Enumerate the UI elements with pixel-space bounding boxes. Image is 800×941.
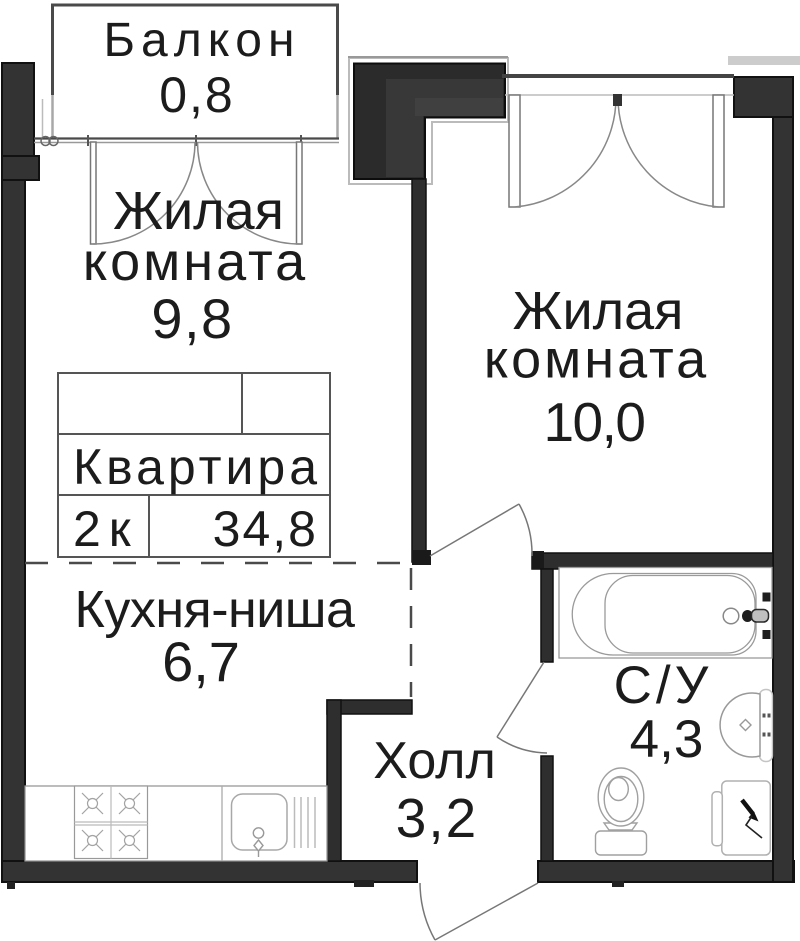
svg-text:Балкон: Балкон [104, 14, 301, 67]
svg-text:Холл: Холл [373, 732, 496, 790]
svg-text:34,8: 34,8 [213, 501, 318, 557]
svg-text:6,7: 6,7 [162, 630, 240, 693]
svg-text:комната: комната [83, 232, 308, 292]
svg-text:4,3: 4,3 [630, 710, 704, 769]
svg-text:9,8: 9,8 [151, 287, 233, 350]
svg-text:Квартира: Квартира [73, 439, 321, 495]
svg-text:2к: 2к [73, 501, 139, 557]
svg-text:С/У: С/У [614, 656, 713, 715]
svg-text:3,2: 3,2 [396, 787, 478, 849]
svg-text:10,0: 10,0 [543, 391, 644, 453]
svg-text:0,8: 0,8 [159, 67, 235, 123]
svg-text:комната: комната [484, 330, 709, 390]
